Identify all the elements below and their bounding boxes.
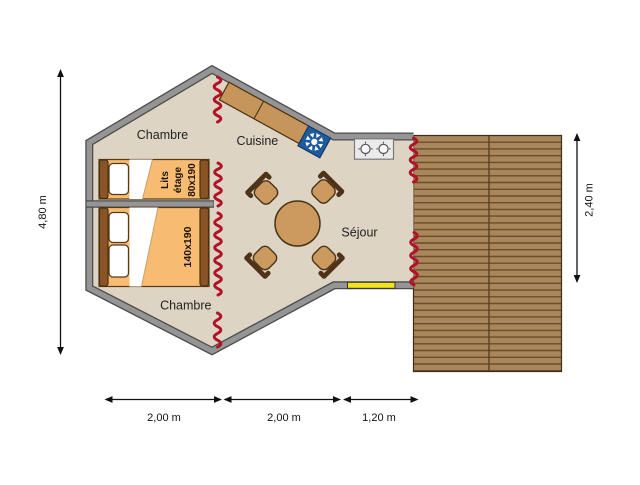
svg-text:Chambre: Chambre (137, 128, 188, 142)
svg-text:140x190: 140x190 (182, 226, 194, 267)
svg-text:4,80 m: 4,80 m (37, 195, 49, 229)
svg-text:2,00 m: 2,00 m (267, 412, 301, 424)
svg-text:1,20 m: 1,20 m (362, 412, 396, 424)
svg-text:Lits: Lits (160, 171, 171, 189)
svg-text:80x190: 80x190 (187, 163, 198, 197)
svg-text:Séjour: Séjour (341, 226, 377, 240)
svg-text:étage: étage (173, 167, 184, 194)
svg-text:Chambre: Chambre (160, 299, 211, 313)
svg-text:2,00 m: 2,00 m (147, 412, 181, 424)
svg-text:2,40 m: 2,40 m (584, 183, 596, 217)
svg-text:Cuisine: Cuisine (237, 134, 279, 148)
